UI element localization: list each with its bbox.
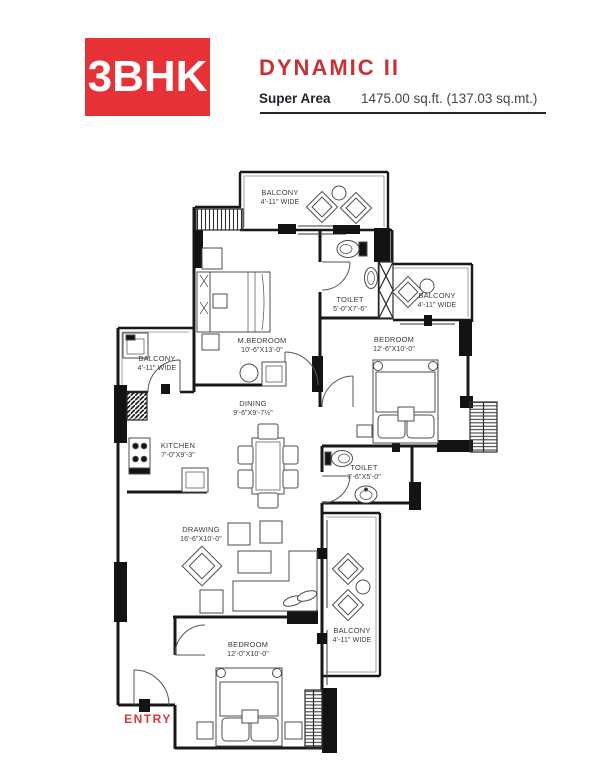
drawing-armchair <box>182 546 222 586</box>
m-bedroom-bed <box>197 272 270 332</box>
room-label-toilet-mid: TOILET7'-6"X5'-0" <box>347 463 381 483</box>
room-label-balcony-left: BALCONY4'-11" WIDE <box>138 354 177 374</box>
entry-label: ENTRY <box>124 712 172 726</box>
bedroom-right-bed <box>373 360 438 443</box>
kitchen-counter-hatch <box>127 392 147 420</box>
dining-table-set <box>238 424 298 508</box>
balcony-bottom-seating <box>332 553 370 620</box>
room-label-balcony-bottom: BALCONY4'-11" WIDE <box>333 626 372 646</box>
room-label-bedroom-bottom: BEDROOM12'-0"X10'-0" <box>227 640 269 660</box>
balcony-top-seating <box>306 186 371 224</box>
room-label-bedroom-right: BEDROOM12'-6"X10'-0" <box>373 335 415 355</box>
bedroom-bottom-side-table-1 <box>197 722 213 739</box>
kitchen-sink <box>182 468 208 492</box>
room-label-toilet-top: TOILET5'-0"X7'-6" <box>333 295 367 315</box>
bedroom-bottom-bed <box>216 668 282 746</box>
floor-plan <box>0 0 610 784</box>
bedroom-bottom-door <box>175 625 205 655</box>
m-bedroom-side-table-1 <box>202 248 222 269</box>
m-bedroom-stool <box>240 364 258 382</box>
shaft-x <box>379 262 393 318</box>
brochure-page: 3BHK DYNAMIC II Super Area 1475.00 sq.ft… <box>0 0 610 784</box>
m-bedroom-side-table-2 <box>202 334 219 350</box>
room-label-drawing: DRAWING16'-6"X10'-0" <box>180 525 222 545</box>
toilet-mid-sink <box>355 486 377 503</box>
kitchen-stove <box>129 438 150 474</box>
bedroom-bottom-side-table-2 <box>285 722 302 739</box>
toilet-top-sink <box>365 268 378 289</box>
room-label-balcony-top: BALCONY4'-11" WIDE <box>261 188 300 208</box>
toilet-top-wc <box>337 241 367 258</box>
room-label-dining: DINING9'-6"X9'-7½" <box>233 399 273 419</box>
room-label-balcony-right: BALCONY4'-11" WIDE <box>418 291 457 311</box>
wardrobe <box>196 209 243 230</box>
drawing-side-tables <box>228 521 282 545</box>
bedroom-right-side-table <box>357 425 372 437</box>
bedroom-right-door <box>322 376 353 407</box>
room-label-kitchen: KITCHEN7'-0"X9'-3" <box>161 441 195 461</box>
toilet-mid-door <box>322 476 350 503</box>
m-bedroom-dresser <box>262 362 286 386</box>
drawing-coffee-table <box>238 551 271 573</box>
room-label-m-bedroom: M.BEDROOM10'-6"X13'-0" <box>238 336 287 356</box>
toilet-top-door <box>322 262 350 290</box>
drawing-pouf <box>200 590 223 613</box>
